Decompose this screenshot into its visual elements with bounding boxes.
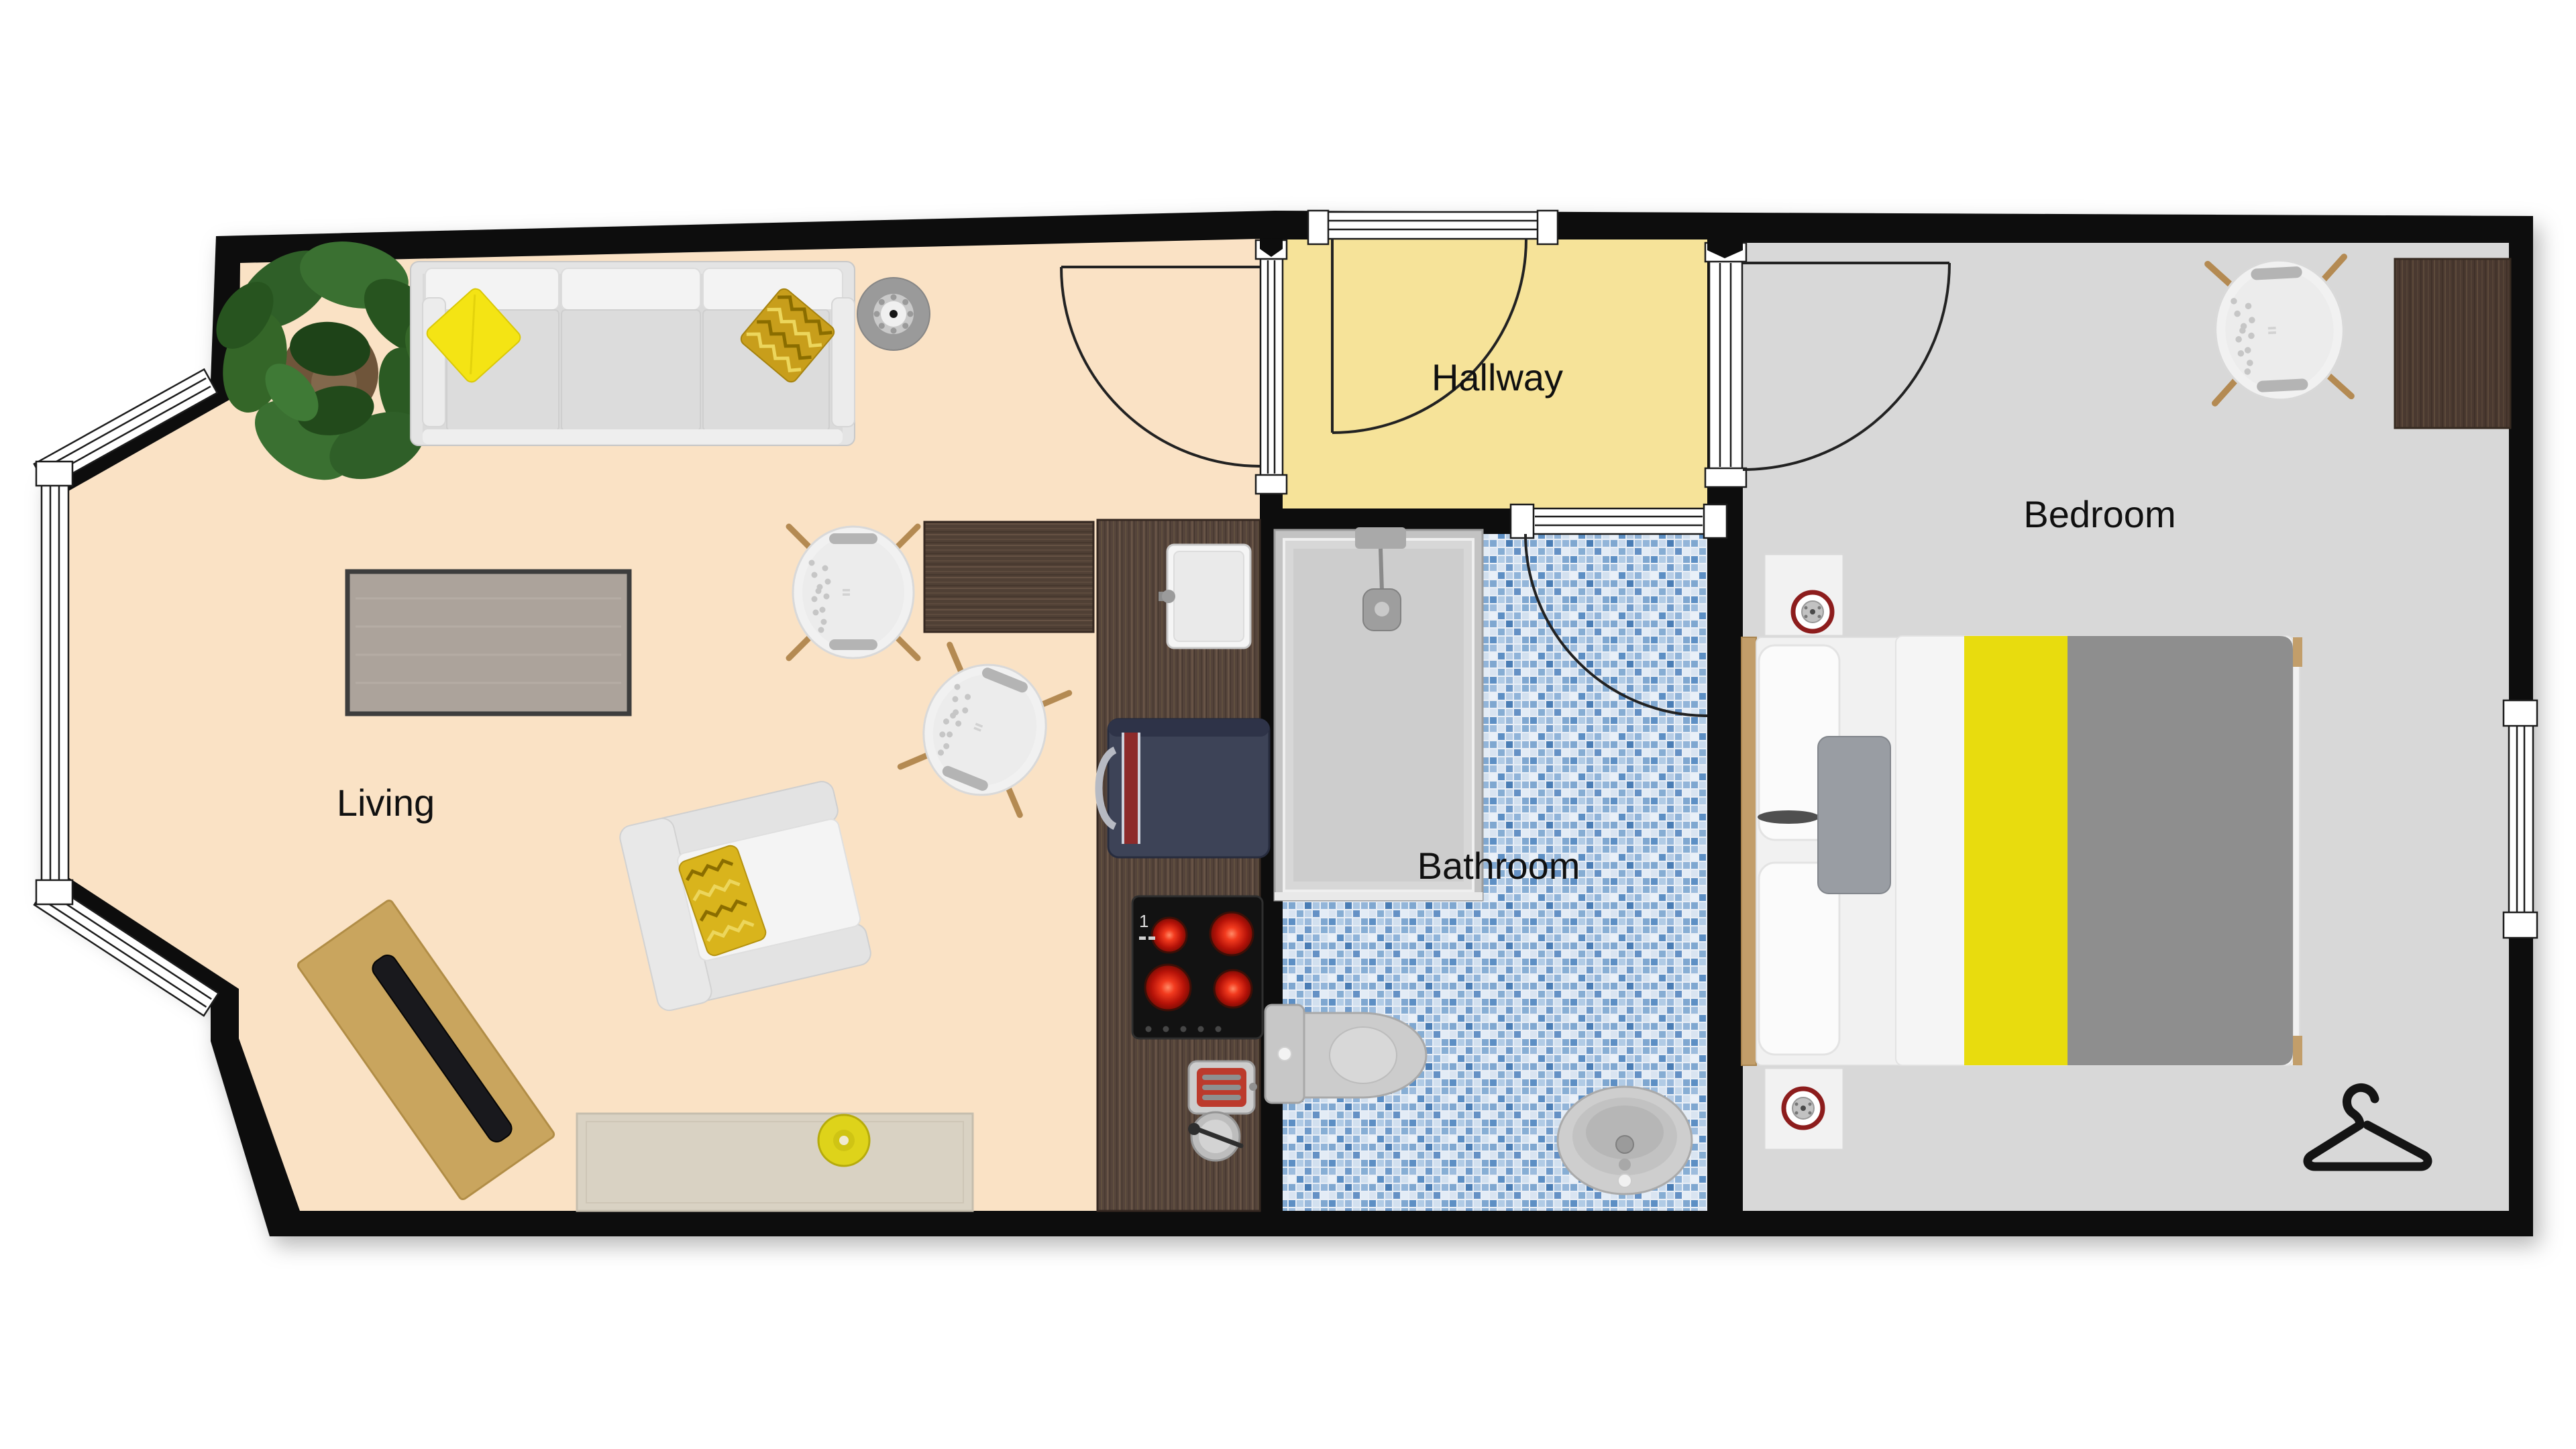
room-label-hallway: Hallway xyxy=(1432,356,1563,398)
bed-runner-yellow xyxy=(1964,636,2068,1065)
vase-icon xyxy=(818,1115,869,1166)
dining-chair-icon xyxy=(789,527,918,658)
side-table-icon xyxy=(857,278,930,350)
bedroom-window-icon xyxy=(2504,700,2537,938)
nightstand-icon xyxy=(1764,554,1843,636)
accent-pillow xyxy=(1818,737,1890,894)
sideboard-icon xyxy=(577,1114,973,1211)
living-door-jamb xyxy=(1256,240,1287,494)
toaster-icon xyxy=(1189,1061,1257,1114)
room-label-bedroom: Bedroom xyxy=(2023,493,2176,535)
bay-window-center-icon xyxy=(36,462,72,904)
alarm-clock-icon xyxy=(1793,592,1832,631)
bedroom-desk-icon xyxy=(2395,259,2510,428)
coffee-table-icon xyxy=(347,572,629,714)
entry-door-frame xyxy=(1308,211,1558,244)
sofa-icon xyxy=(411,262,855,445)
kitchen-sink-icon xyxy=(1159,545,1250,648)
headboard xyxy=(1741,637,1756,1065)
stove-marking: 1 xyxy=(1139,911,1148,931)
room-label-bathroom: Bathroom xyxy=(1417,845,1580,887)
blanket-gray xyxy=(2068,636,2293,1065)
bed-icon xyxy=(1741,636,2302,1065)
cooktop-icon: 1 xyxy=(1132,896,1263,1038)
nightstand-icon xyxy=(1764,1068,1843,1150)
room-label-living: Living xyxy=(337,782,435,824)
dining-table-icon xyxy=(924,522,1093,632)
floor-plan-canvas: 1 xyxy=(0,0,2576,1449)
washbasin-icon xyxy=(1558,1087,1692,1194)
bathroom-door-jamb xyxy=(1511,504,1727,538)
bedroom-door-jamb xyxy=(1705,243,1746,487)
alarm-clock-icon xyxy=(1784,1089,1823,1128)
stand-mixer-icon xyxy=(1099,719,1269,857)
